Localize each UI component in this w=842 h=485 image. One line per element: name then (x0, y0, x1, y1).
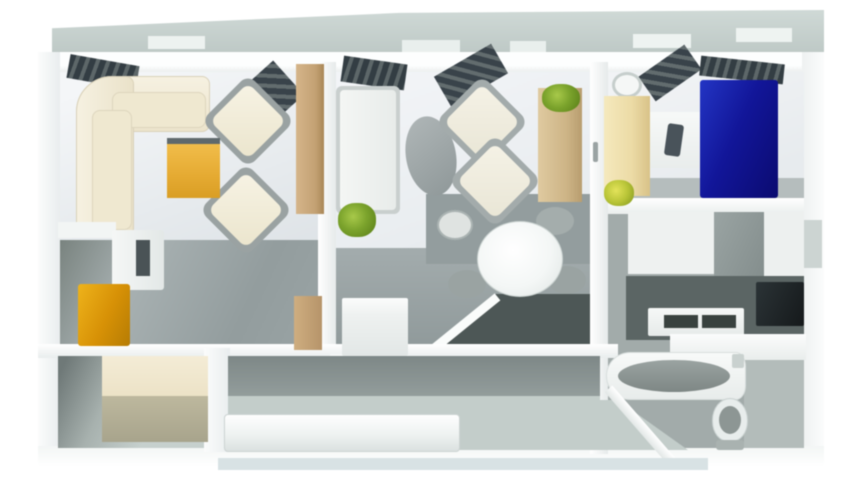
bottom-shadow-strip (218, 458, 708, 470)
round-dining-table (477, 221, 563, 297)
corridor-dark-band (228, 356, 600, 400)
tv-screen (136, 240, 150, 276)
corner-sofa-seat (92, 110, 132, 230)
dining-chair (437, 210, 473, 240)
cream-cabinet-base (102, 396, 208, 442)
shower-gray-wall (714, 212, 768, 284)
orange-cabinet (78, 284, 130, 346)
white-sofa-body (340, 90, 396, 210)
toilet-seat (719, 406, 741, 434)
counter-slot (702, 315, 736, 328)
yellow-coffee-table (167, 144, 220, 198)
outer-wall-left (38, 52, 60, 466)
corridor-bench (224, 414, 460, 452)
floorplan-stage (0, 0, 842, 485)
toilet-base (716, 440, 744, 450)
bedroom-plant (604, 180, 634, 206)
dark-vanity (756, 282, 804, 326)
eave-window-slot (148, 36, 205, 49)
round-lamp (612, 72, 642, 98)
tv-niche-wall (58, 222, 116, 238)
potted-plant (338, 203, 376, 237)
small-tan-cabinet (294, 296, 322, 350)
bathroom-white-wall-face (628, 212, 718, 274)
eave-window-slot (736, 28, 792, 42)
wardrobe-plant (542, 84, 580, 112)
door-handle (593, 142, 598, 162)
tan-bookcase (296, 64, 324, 214)
side-table (342, 298, 408, 356)
blue-double-bed (700, 80, 778, 198)
cream-cabinet-top (102, 356, 208, 398)
counter-slot (664, 315, 698, 328)
bathtub-tap (732, 354, 744, 368)
right-wall-window (804, 220, 822, 268)
bathtub-basin (618, 360, 730, 392)
bathroom-right-wall-face (764, 212, 804, 280)
